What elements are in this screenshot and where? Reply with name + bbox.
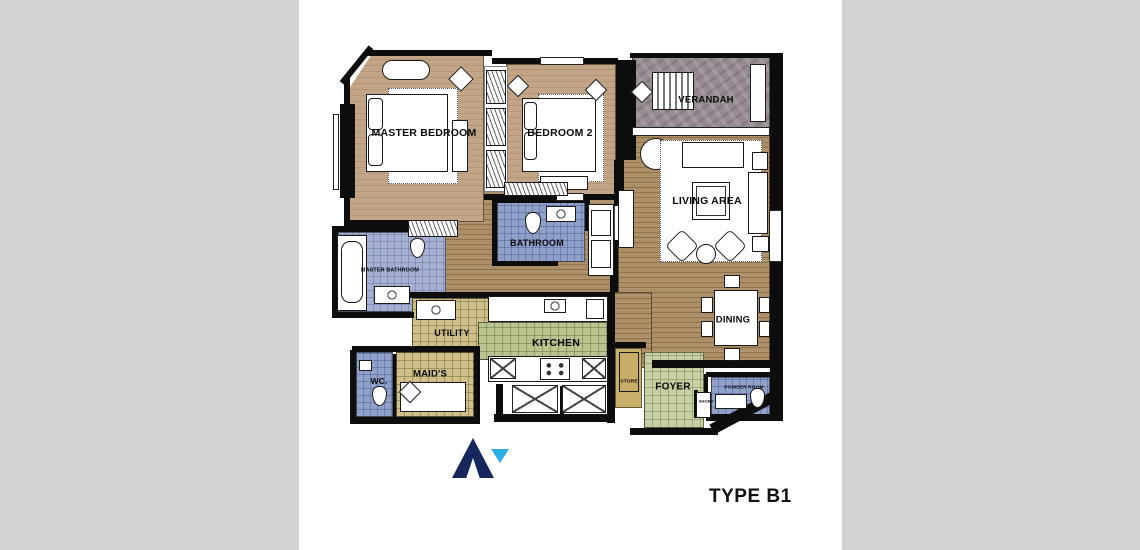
wall-mbath-bottom — [332, 312, 414, 318]
room-label-maids: MAID'S — [413, 369, 447, 380]
wc-sink — [359, 360, 372, 371]
wall-bath-bottom — [492, 261, 558, 266]
room-label-powder-room: POWDER ROOM — [724, 384, 763, 389]
wall-mb-top — [366, 50, 492, 56]
wall-kitchen-right — [607, 292, 615, 423]
room-label-dining: DINING — [716, 315, 750, 326]
room-label-master-bathroom: MASTER BATHROOM — [361, 267, 419, 273]
master-chaise — [382, 60, 430, 80]
tv-cabinet — [618, 190, 634, 248]
room-label-kitchen: KITCHEN — [532, 337, 580, 349]
bedroom2-pillow — [524, 102, 537, 130]
wall-wc-left — [350, 350, 356, 424]
wall-bath-left — [492, 197, 497, 265]
wardrobe — [486, 108, 506, 146]
room-label-wc: WC. — [370, 376, 387, 386]
room-label-verandah: VERANDAH — [678, 95, 733, 106]
wall-b2-verandah-pillar — [616, 60, 636, 160]
elevator-shaft — [512, 385, 558, 413]
master-bed-pillow — [368, 98, 383, 130]
room-label-bedroom-2: BEDROOM 2 — [527, 127, 592, 139]
elevator-shaft — [562, 385, 606, 413]
wall-elevator-bottom — [494, 414, 615, 422]
living-daybed — [682, 142, 744, 168]
wall-utility-top — [410, 292, 492, 298]
wall-wc-top — [352, 346, 480, 352]
wardrobe — [486, 150, 506, 188]
dining-chair — [759, 297, 770, 313]
hall-shelf-box — [591, 210, 611, 236]
wall-wc-bottom — [350, 417, 480, 424]
living-sofa — [748, 172, 768, 234]
store-cabinet — [619, 352, 639, 392]
page-background: MASTER BEDROOM BEDROOM 2 VERANDAH LIVING… — [0, 0, 1140, 550]
room-label-utility: UTILITY — [434, 328, 469, 338]
kitchen-unit — [490, 358, 516, 379]
wall-foyer-right — [704, 374, 708, 392]
window-right-bay — [769, 210, 782, 262]
linen-closet — [504, 182, 568, 196]
side-table — [752, 152, 768, 170]
kitchen-stove — [540, 358, 570, 380]
wall-mbath-top — [334, 226, 408, 232]
wall-powder-top — [706, 372, 770, 377]
kitchen-sink — [544, 299, 566, 313]
wall-wc-maid-divider — [393, 354, 396, 417]
wall-b2-top-a — [492, 58, 542, 64]
shoes-cabinet — [696, 392, 711, 418]
dining-chair — [701, 297, 713, 313]
wall-verandah-top — [630, 53, 772, 58]
linen-closet — [408, 220, 458, 237]
bathroom-vanity — [546, 206, 576, 222]
hall-shelf-box — [591, 240, 611, 268]
room-label-shoes: SHOES — [699, 399, 714, 404]
utility-counter — [416, 300, 456, 320]
room-label-foyer: FOYER — [655, 382, 690, 393]
kitchen-fridge — [586, 299, 604, 319]
wall-store-top — [612, 342, 646, 348]
verandah-planter — [750, 64, 766, 122]
master-vanity — [374, 286, 410, 304]
powder-vanity — [715, 394, 747, 409]
verandah-sliding-door — [632, 127, 770, 136]
room-label-bathroom: BATHROOM — [510, 238, 564, 248]
master-bathtub — [341, 241, 363, 303]
dining-chair — [701, 321, 713, 337]
room-label-store: STORE — [620, 378, 638, 384]
room-label-master-bedroom: MASTER BEDROOM — [372, 127, 477, 139]
wall-foyer-bottom — [630, 428, 718, 435]
wall-left-pillar — [340, 104, 355, 198]
plan-type-label: TYPE B1 — [709, 486, 792, 508]
wall-b2-top-b — [582, 58, 618, 64]
wardrobe — [486, 70, 506, 104]
side-table — [752, 236, 769, 252]
wall-maid-right — [474, 348, 480, 420]
wall-dining-bottom — [652, 360, 770, 368]
room-label-living-area: LIVING AREA — [672, 195, 741, 207]
window-b2-top — [540, 57, 584, 65]
window-left-bay — [333, 114, 339, 190]
round-table — [696, 244, 716, 264]
dining-chair — [724, 348, 740, 361]
dining-chair — [724, 275, 740, 288]
kitchen-unit — [582, 358, 606, 379]
wall-elevator-left — [496, 384, 503, 416]
dining-chair — [759, 321, 770, 337]
